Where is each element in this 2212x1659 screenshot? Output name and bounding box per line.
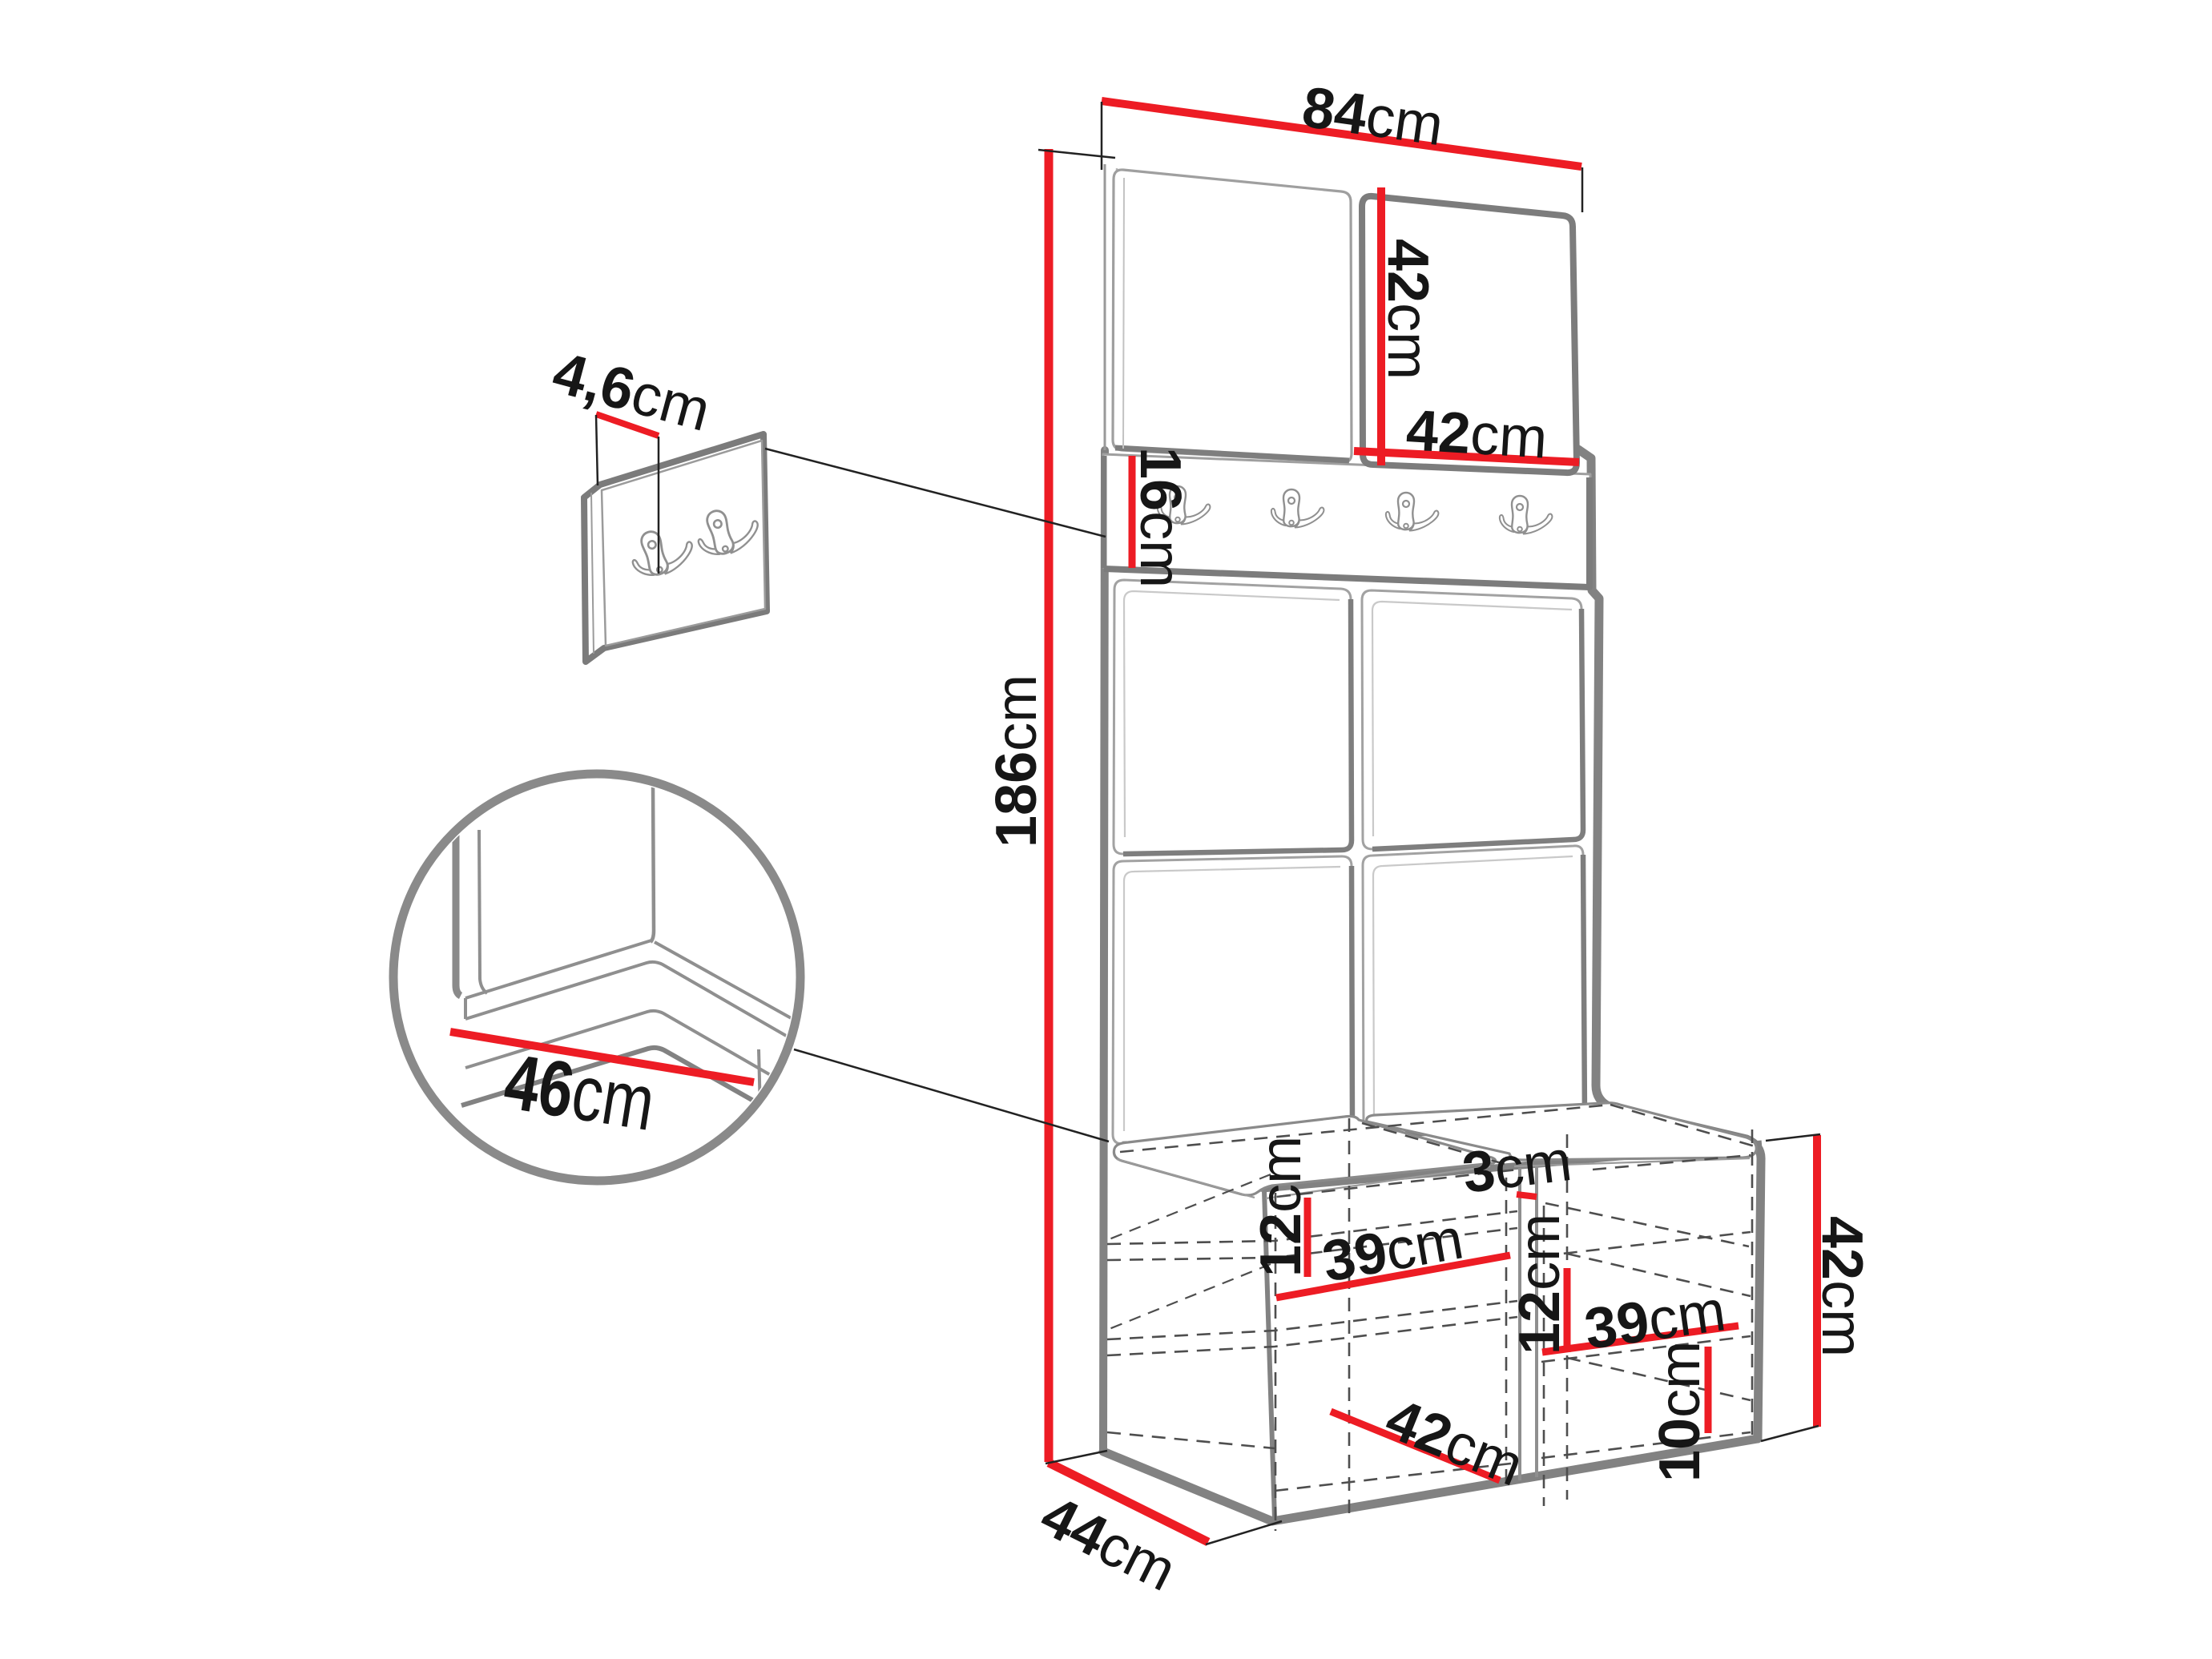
svg-text:42cm: 42cm xyxy=(1376,239,1440,380)
svg-text:12cm: 12cm xyxy=(1249,1136,1313,1277)
svg-text:42cm: 42cm xyxy=(1810,1216,1874,1357)
svg-text:10cm: 10cm xyxy=(1648,1341,1712,1482)
svg-text:12cm: 12cm xyxy=(1508,1214,1572,1355)
svg-text:3cm: 3cm xyxy=(1459,1129,1575,1206)
svg-text:42cm: 42cm xyxy=(1404,398,1549,471)
svg-text:16cm: 16cm xyxy=(1128,447,1192,588)
svg-text:186cm: 186cm xyxy=(985,674,1049,848)
